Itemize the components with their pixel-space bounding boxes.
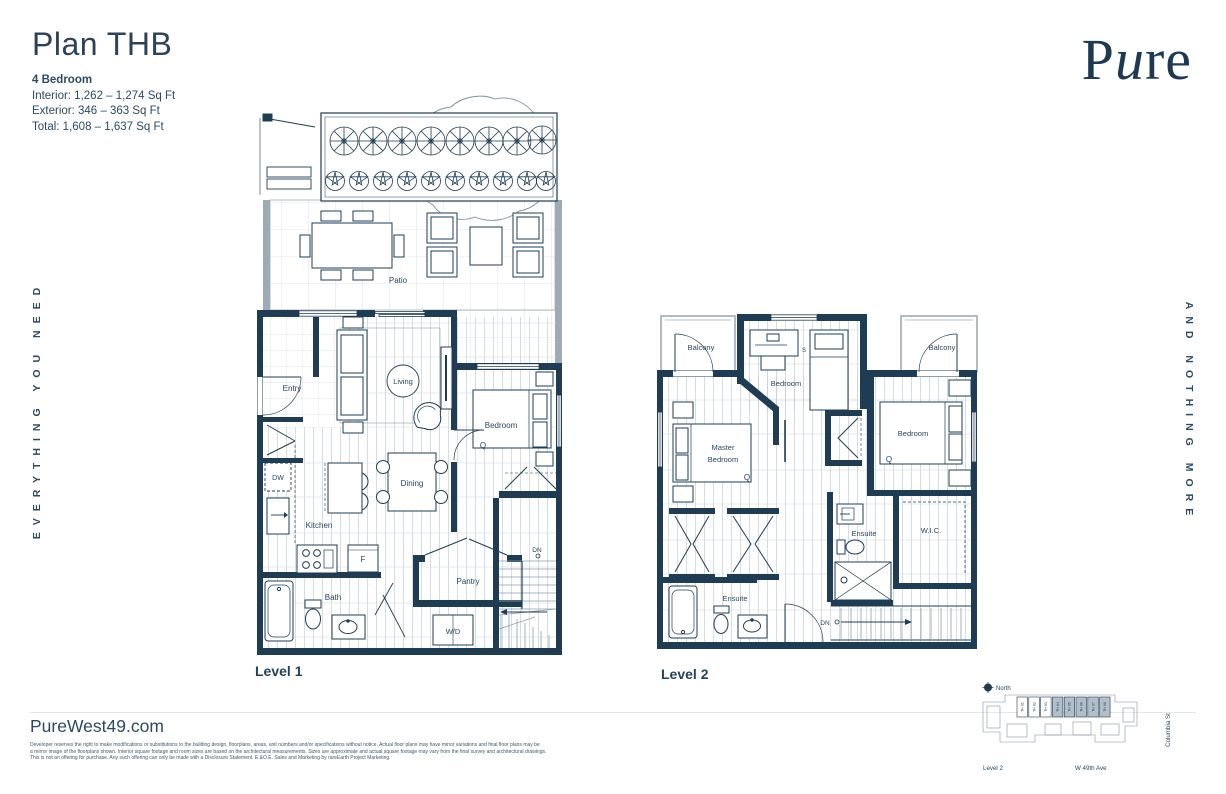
- sink-ensuite2: [837, 504, 863, 524]
- label-dn-l2: DN: [820, 620, 830, 627]
- label-bedroom: Bedroom: [485, 421, 518, 430]
- bathtub-l2: [669, 586, 697, 638]
- label-patio: Patio: [389, 276, 408, 285]
- sofa: [337, 317, 367, 433]
- label-balcony-right: Balcony: [929, 343, 956, 352]
- nightstand: [949, 380, 971, 396]
- header: Plan THB 4 Bedroom Interior: 1,262 – 1,2…: [32, 26, 175, 135]
- logo-letter-p: P: [1082, 27, 1115, 92]
- label-north: North: [996, 686, 1011, 692]
- bed-single: [810, 330, 848, 410]
- plan-specs: 4 Bedroom Interior: 1,262 – 1,274 Sq Ft …: [32, 73, 175, 135]
- label-pantry: Pantry: [456, 577, 479, 586]
- label-living: Living: [393, 377, 413, 386]
- bathtub: [265, 581, 293, 641]
- tagline-left: EVERYTHING YOU NEED: [31, 281, 43, 539]
- label-ensuite-left: Ensuite: [722, 594, 747, 603]
- label-bed-size: Q: [480, 441, 486, 450]
- label-ensuite-right: Ensuite: [851, 529, 876, 538]
- disclaimer-line: a mirror image of the floorplans shown. …: [30, 749, 590, 756]
- bed-queen-l1: [473, 390, 551, 448]
- pure-logo: Pure: [1082, 26, 1192, 93]
- label-street-bottom: W 49th Ave: [1075, 765, 1107, 772]
- label-master-2: Bedroom: [708, 455, 738, 464]
- label-entry: Entry: [283, 384, 302, 393]
- floorplan-sheet: Plan THB 4 Bedroom Interior: 1,262 – 1,2…: [0, 0, 1226, 794]
- label-bedroom-top-size: S: [802, 348, 806, 354]
- level1-floorplan: Patio: [255, 95, 575, 660]
- label-wd: W/D: [446, 627, 461, 636]
- page-title: Plan THB: [32, 26, 175, 63]
- north-indicator: North: [983, 682, 1011, 693]
- toilet-ensuite2: [837, 540, 864, 554]
- label-street-right: Columbia St: [1165, 713, 1172, 747]
- planter: [321, 113, 557, 201]
- label-bedroom-top: Bedroom: [771, 379, 801, 388]
- unit-label: TH 04: [1056, 702, 1060, 712]
- unit-row: [1017, 697, 1110, 717]
- tagline-right: AND NOTHING MORE: [1183, 302, 1195, 523]
- label-master-size: Q: [744, 473, 750, 482]
- site-keyplan: North TH 01 TH 02 TH 03 TH 04: [975, 680, 1175, 775]
- unit-label: TH 02: [1032, 702, 1036, 712]
- spec-exterior: Exterior: 346 – 363 Sq Ft: [32, 104, 175, 120]
- spec-interior: Interior: 1,262 – 1,274 Sq Ft: [32, 89, 175, 105]
- level2-title: Level 2: [661, 666, 708, 682]
- level2-floorplan: Balcony Balcony Bedroom S Master Bedroom…: [655, 312, 985, 662]
- label-master-1: Master: [712, 443, 735, 452]
- range-stove: [297, 545, 337, 573]
- spec-bedrooms: 4 Bedroom: [32, 73, 175, 89]
- logo-letter-u: u: [1115, 27, 1145, 92]
- label-balcony-left: Balcony: [688, 343, 715, 352]
- bed-master: [673, 424, 751, 482]
- label-kitchen: Kitchen: [306, 521, 333, 530]
- unit-label: TH 01: [1021, 702, 1025, 712]
- nightstand: [673, 486, 693, 502]
- unit-label: TH 05: [1068, 702, 1072, 712]
- unit-label: TH 07: [1091, 702, 1095, 712]
- label-bedroom-right-size: Q: [886, 455, 892, 464]
- nightstand: [536, 372, 553, 386]
- logo-letters-re: re: [1145, 27, 1192, 92]
- disclaimer-line: Developer reserves the right to make mod…: [30, 742, 590, 749]
- label-sitemap-level: Level 2: [983, 765, 1004, 772]
- label-bedroom-right: Bedroom: [898, 429, 928, 438]
- unit-label: TH 03: [1044, 702, 1048, 712]
- nightstand: [673, 402, 693, 418]
- nightstand: [949, 470, 971, 486]
- label-bath: Bath: [325, 593, 341, 602]
- disclaimer: Developer reserves the right to make mod…: [30, 742, 590, 762]
- unit-labels: TH 01 TH 02 TH 03 TH 04 TH 05 TH 06 TH 0…: [1021, 702, 1108, 712]
- unit-label: TH 08: [1103, 702, 1107, 712]
- shower: [835, 562, 891, 600]
- label-dw: DW: [272, 475, 284, 482]
- toilet-l2: [714, 606, 729, 634]
- tv-console: [441, 347, 452, 409]
- kitchen-island: [325, 463, 368, 513]
- bench: [267, 167, 311, 189]
- toilet: [305, 600, 321, 629]
- bath-sink: [332, 615, 365, 639]
- unit-label: TH 06: [1080, 702, 1084, 712]
- website-url: PureWest49.com: [30, 716, 164, 737]
- nightstand: [536, 452, 553, 466]
- label-wic: W.I.C.: [921, 526, 941, 535]
- label-fridge: F: [361, 555, 366, 564]
- disclaimer-line: This is not an offering for purchase. An…: [30, 755, 590, 762]
- label-dn: DN: [532, 547, 542, 554]
- spec-total: Total: 1,608 – 1,637 Sq Ft: [32, 120, 175, 136]
- sink-l2: [738, 615, 767, 638]
- level1-title: Level 1: [255, 663, 302, 679]
- label-dining: Dining: [401, 479, 424, 488]
